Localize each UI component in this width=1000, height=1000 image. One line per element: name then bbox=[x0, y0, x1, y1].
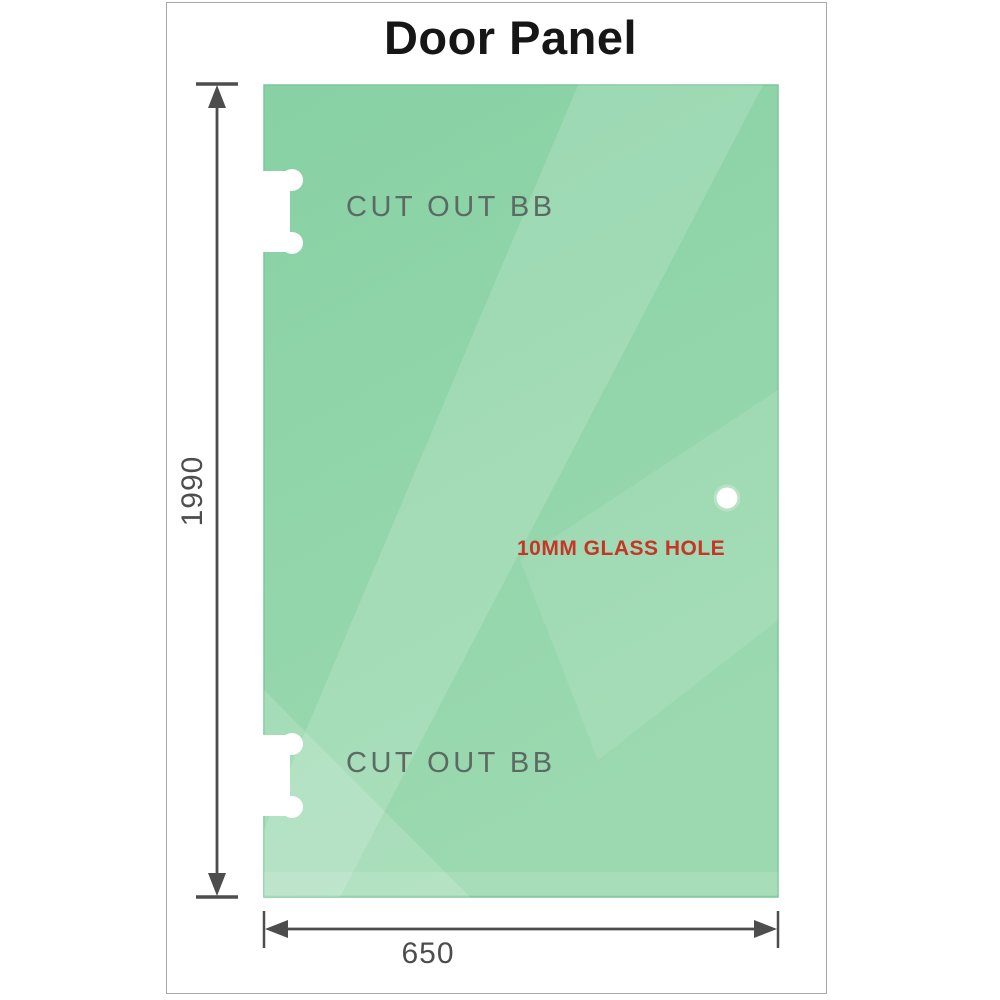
cutout-label-top: CUT OUT BB bbox=[346, 191, 556, 224]
height-dim-arrow-up bbox=[208, 85, 226, 108]
width-dim-arrow-left bbox=[265, 920, 288, 938]
width-dim-arrow-right bbox=[754, 920, 777, 938]
hinge-cutout-top-lobe-upper bbox=[281, 169, 303, 191]
page-root: Door Panel bbox=[0, 0, 1000, 1000]
height-dimension-value: 1990 bbox=[175, 431, 211, 551]
door-panel-drawing bbox=[0, 0, 1000, 1000]
hinge-cutout-bottom-lobe-lower bbox=[281, 796, 303, 818]
glass-hole-label: 10MM GLASS HOLE bbox=[517, 537, 725, 561]
hinge-cutout-bottom-lobe-upper bbox=[281, 733, 303, 755]
hinge-cutout-top-lobe-lower bbox=[281, 232, 303, 254]
width-dimension-value: 650 bbox=[398, 937, 458, 971]
glass-sheen-bottom-strip bbox=[264, 872, 778, 895]
height-dim-arrow-down bbox=[208, 873, 226, 896]
glass-hole bbox=[715, 486, 739, 510]
width-dimension bbox=[264, 911, 778, 948]
cutout-label-bottom: CUT OUT BB bbox=[346, 747, 556, 780]
